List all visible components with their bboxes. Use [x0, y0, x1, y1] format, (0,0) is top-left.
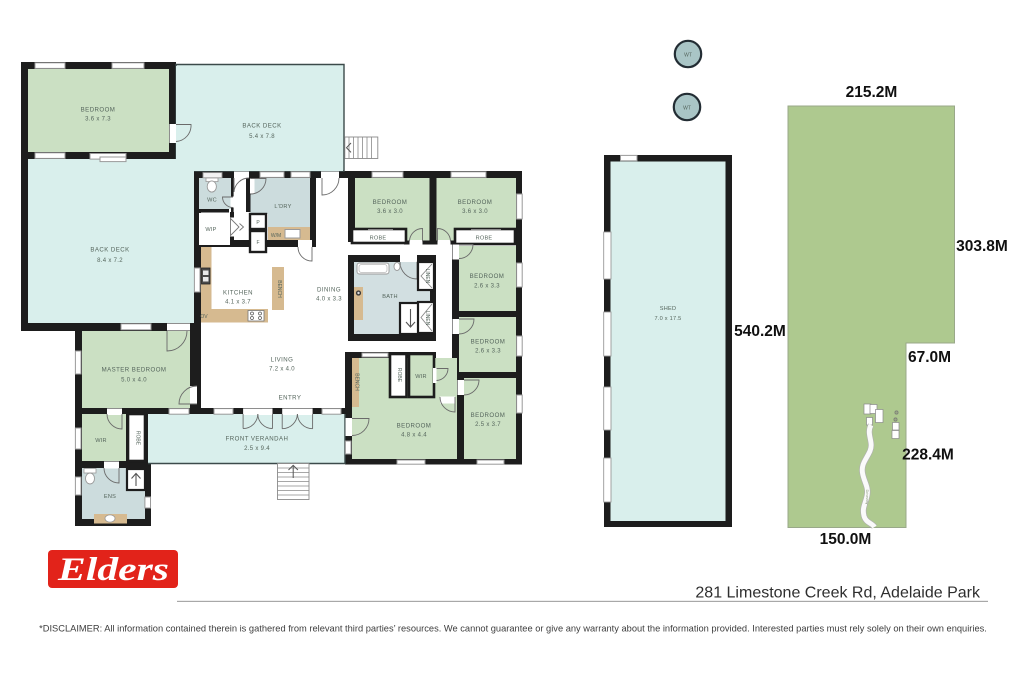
svg-text:Elders: Elders	[57, 552, 169, 588]
svg-text:ROBE: ROBE	[476, 236, 493, 242]
svg-text:3.6 x 7.3: 3.6 x 7.3	[85, 117, 111, 123]
svg-text:BEDROOM: BEDROOM	[397, 423, 432, 430]
svg-text:BEDROOM: BEDROOM	[458, 199, 493, 206]
svg-text:*DISCLAIMER: All information c: *DISCLAIMER: All information contained t…	[39, 624, 987, 634]
svg-text:WC: WC	[207, 198, 217, 204]
svg-text:215.2M: 215.2M	[846, 84, 898, 101]
svg-text:WT: WT	[683, 106, 691, 112]
svg-text:BEDROOM: BEDROOM	[471, 412, 506, 419]
svg-text:228.4M: 228.4M	[902, 447, 954, 464]
svg-text:4.8 x 4.4: 4.8 x 4.4	[401, 433, 427, 439]
svg-text:67.0M: 67.0M	[908, 349, 951, 366]
svg-text:WIR: WIR	[415, 374, 427, 380]
svg-text:BEDROOM: BEDROOM	[81, 107, 116, 114]
svg-text:8.4 x 7.2: 8.4 x 7.2	[97, 258, 123, 264]
svg-text:3.6 x 3.0: 3.6 x 3.0	[462, 209, 488, 215]
svg-text:ROBE: ROBE	[135, 431, 141, 446]
svg-text:2.6 x 3.3: 2.6 x 3.3	[475, 349, 501, 355]
svg-text:7.0 x 17.5: 7.0 x 17.5	[654, 316, 681, 322]
svg-text:F: F	[256, 240, 259, 246]
svg-text:WT: WT	[684, 53, 692, 59]
svg-text:5.4 x 7.8: 5.4 x 7.8	[249, 134, 275, 140]
svg-text:2.5 x 9.4: 2.5 x 9.4	[244, 446, 270, 452]
svg-text:BACK DECK: BACK DECK	[90, 247, 129, 254]
svg-text:L'DRY: L'DRY	[274, 204, 291, 210]
svg-text:BACK DECK: BACK DECK	[242, 123, 281, 130]
svg-text:150.0M: 150.0M	[820, 531, 872, 548]
svg-text:ENTRY: ENTRY	[279, 395, 302, 402]
svg-text:ROBE: ROBE	[370, 236, 387, 242]
svg-text:FRONT VERANDAH: FRONT VERANDAH	[226, 436, 289, 443]
svg-text:7.2 x 4.0: 7.2 x 4.0	[269, 367, 295, 373]
svg-text:4.0 x 3.3: 4.0 x 3.3	[316, 297, 342, 303]
svg-text:OV: OV	[200, 314, 208, 320]
svg-text:KITCHEN: KITCHEN	[223, 290, 253, 297]
svg-text:ENS: ENS	[104, 494, 116, 500]
svg-text:4.1 x 3.7: 4.1 x 3.7	[225, 300, 251, 306]
svg-text:540.2M: 540.2M	[734, 323, 786, 340]
svg-text:LINEN: LINEN	[424, 269, 430, 284]
svg-text:BENCH: BENCH	[354, 373, 360, 391]
svg-text:3.6 x 3.0: 3.6 x 3.0	[377, 209, 403, 215]
svg-text:BEDROOM: BEDROOM	[471, 339, 506, 346]
svg-text:BENCH: BENCH	[276, 280, 282, 298]
svg-text:5.0 x 4.0: 5.0 x 4.0	[121, 378, 147, 384]
svg-text:LIVING: LIVING	[271, 357, 294, 364]
svg-text:WIP: WIP	[205, 227, 216, 233]
svg-text:DINING: DINING	[317, 287, 341, 294]
svg-text:WIR: WIR	[95, 438, 107, 444]
svg-text:2.5 x 3.7: 2.5 x 3.7	[475, 422, 501, 428]
svg-text:BATH: BATH	[382, 294, 398, 300]
svg-text:Driveway: Driveway	[865, 490, 869, 505]
svg-text:BEDROOM: BEDROOM	[373, 199, 408, 206]
svg-text:W/M: W/M	[271, 233, 281, 239]
svg-text:303.8M: 303.8M	[956, 238, 1008, 255]
svg-text:ROBE: ROBE	[396, 368, 402, 383]
svg-text:SHED: SHED	[660, 306, 677, 312]
svg-text:MASTER BEDROOM: MASTER BEDROOM	[102, 367, 167, 374]
svg-text:281 Limestone Creek Rd, Adelai: 281 Limestone Creek Rd, Adelaide Park	[695, 585, 981, 602]
svg-text:BEDROOM: BEDROOM	[470, 273, 505, 280]
svg-text:2.6 x 3.3: 2.6 x 3.3	[474, 284, 500, 290]
svg-text:LINEN: LINEN	[424, 311, 430, 326]
